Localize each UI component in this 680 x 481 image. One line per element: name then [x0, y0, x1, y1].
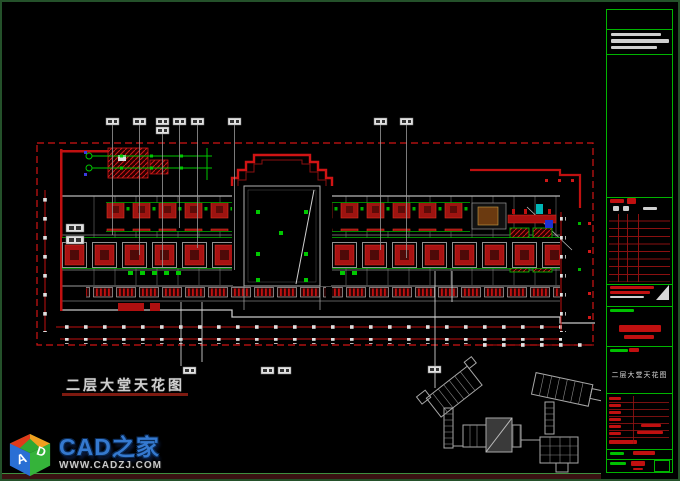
watermark-brand: CAD之家	[59, 435, 162, 459]
drawing-name: 二层大堂天花图	[607, 370, 672, 380]
watermark: A D CAD之家 WWW.CADZJ.COM	[7, 433, 162, 479]
plan-title-underline	[62, 393, 188, 396]
firm-logo-icon	[656, 285, 669, 300]
watermark-url: WWW.CADZJ.COM	[59, 460, 162, 471]
plan-title: 二层大堂天花图	[66, 375, 185, 395]
title-block-frame: 二层大堂天花图	[606, 9, 673, 473]
atrium	[232, 150, 332, 310]
watermark-logo-cube-icon: A D	[7, 433, 53, 479]
cad-viewport: 二层大堂天花图 A D CAD之家 WWW.CADZJ.COM	[0, 0, 680, 481]
floor-plan-drawing	[0, 0, 680, 481]
key-plan	[417, 355, 608, 472]
title-block: 二层大堂天花图	[601, 0, 680, 481]
